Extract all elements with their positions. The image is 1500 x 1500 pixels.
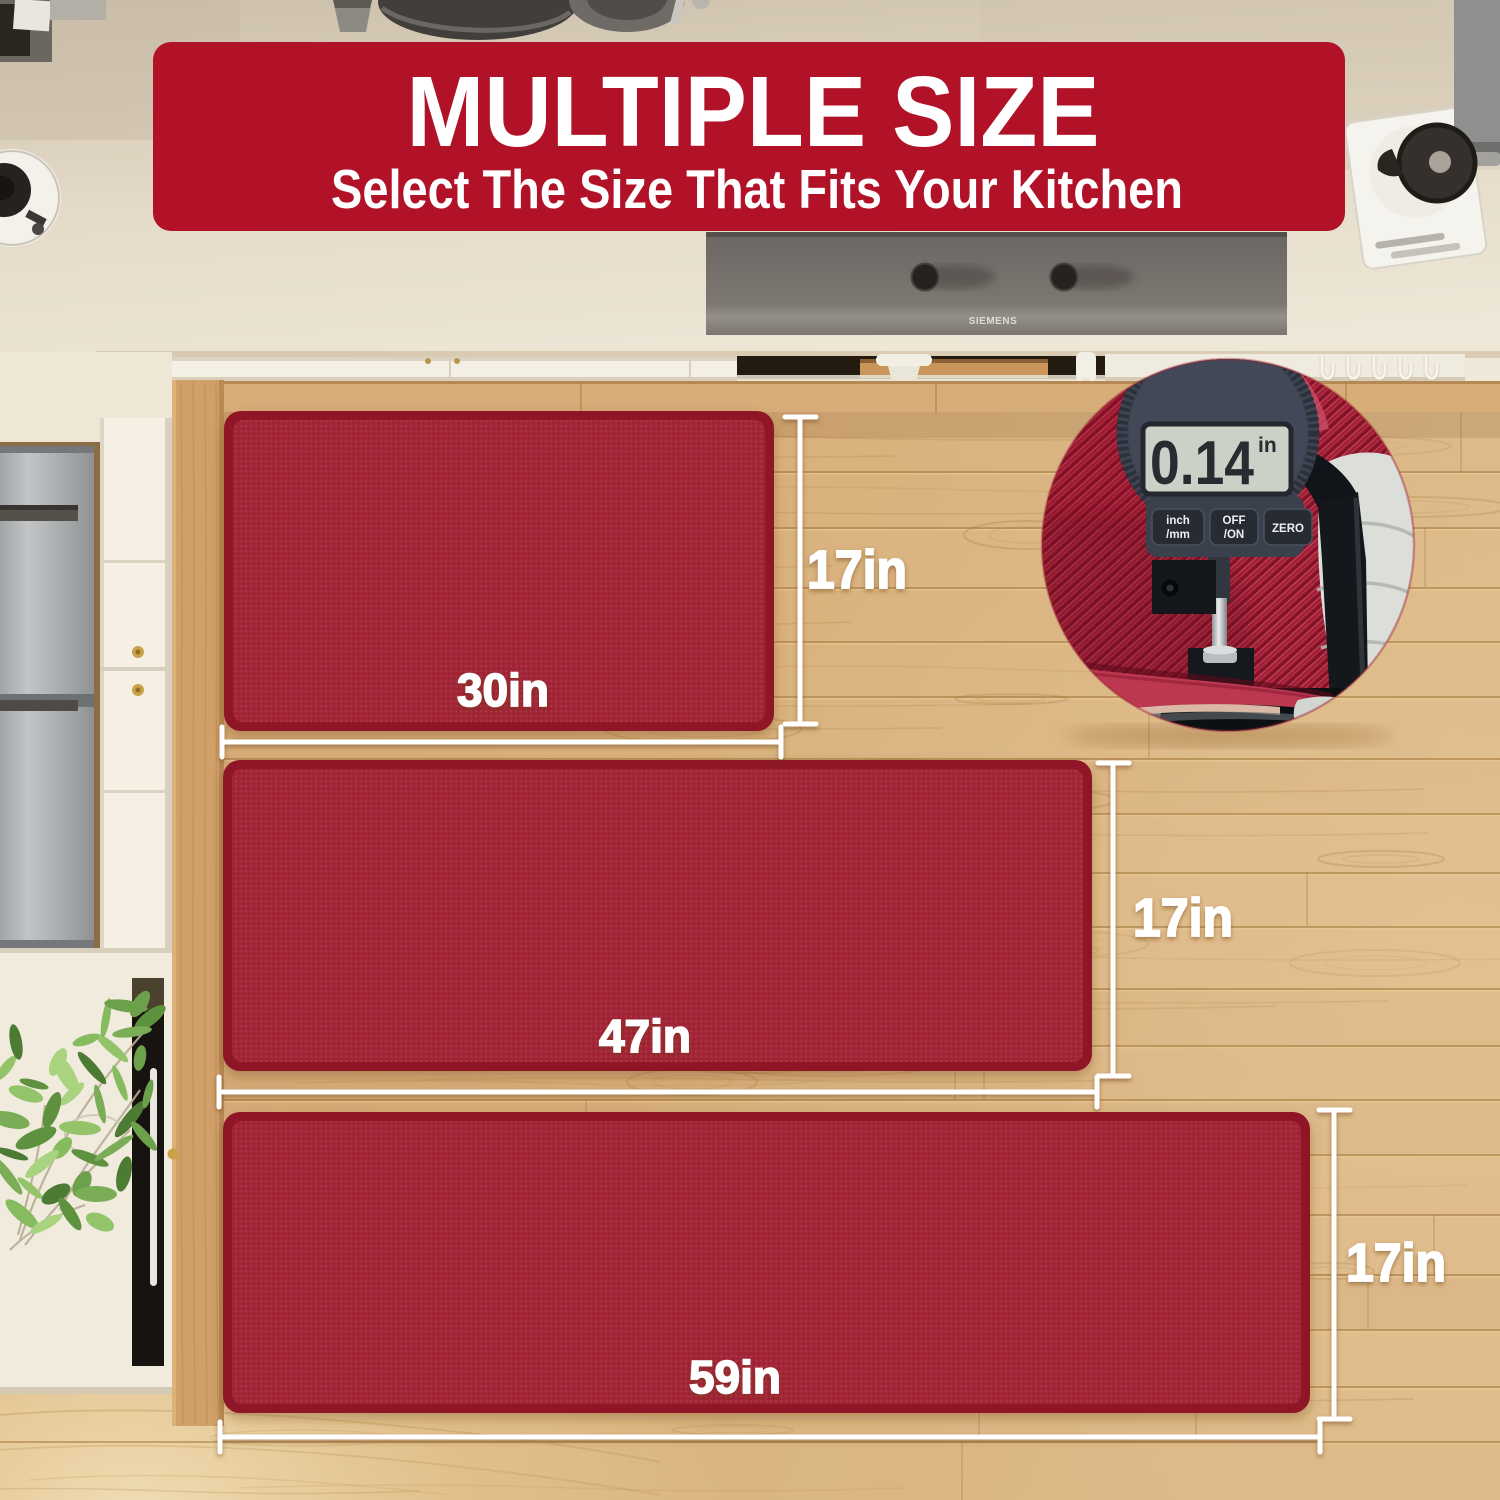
- svg-text:OFF: OFF: [1223, 515, 1246, 527]
- svg-text:59in: 59in: [689, 1351, 781, 1403]
- svg-text:17in: 17in: [1346, 1233, 1446, 1293]
- svg-text:/ON: /ON: [1224, 529, 1244, 541]
- svg-text:MULTIPLE SIZE: MULTIPLE SIZE: [407, 56, 1100, 168]
- svg-text:/mm: /mm: [1166, 529, 1190, 541]
- svg-text:17in: 17in: [807, 540, 907, 600]
- svg-text:17in: 17in: [1133, 888, 1233, 948]
- svg-text:inch: inch: [1166, 515, 1190, 527]
- svg-text:47in: 47in: [599, 1010, 691, 1062]
- svg-text:ZERO: ZERO: [1272, 523, 1304, 535]
- svg-text:0.14: 0.14: [1150, 429, 1254, 498]
- svg-text:Select The Size That Fits Your: Select The Size That Fits Your Kitchen: [331, 158, 1183, 220]
- svg-text:30in: 30in: [457, 664, 549, 716]
- svg-text:in: in: [1258, 434, 1277, 457]
- svg-text:SIEMENS: SIEMENS: [969, 316, 1018, 327]
